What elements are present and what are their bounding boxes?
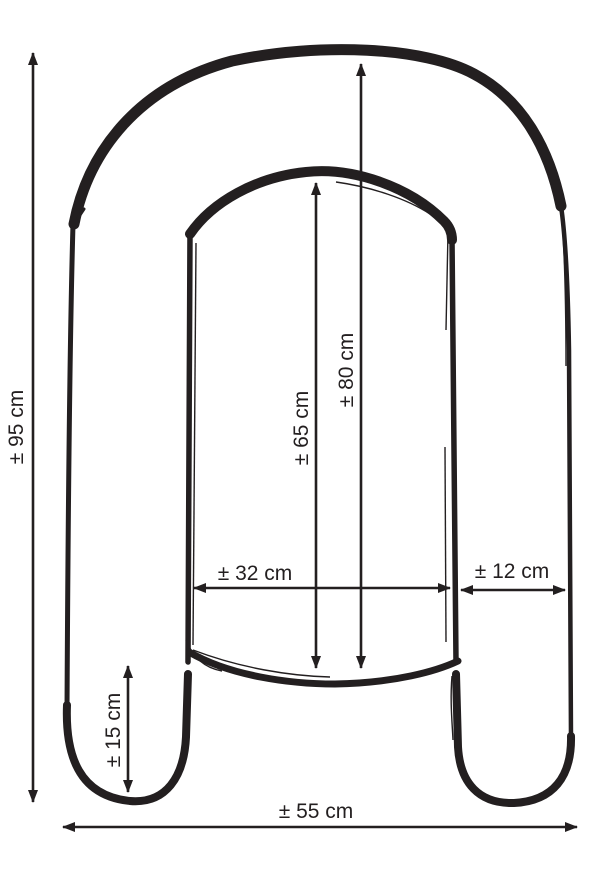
label-tube-width: ± 12 cm (475, 560, 550, 583)
pillow-outline (67, 50, 571, 803)
label-overall-width: ± 55 cm (279, 800, 354, 823)
outer-right-leg (456, 674, 571, 803)
sketch-line-inner-right-top (446, 232, 448, 330)
dimension-labels: ± 95 cm ± 80 cm ± 65 cm ± 32 cm ± 12 cm … (5, 333, 549, 823)
sketch-line-inner-left (193, 243, 196, 645)
label-overall-height: ± 95 cm (5, 390, 28, 465)
outer-top-band (74, 50, 561, 224)
inner-top-band (190, 171, 452, 240)
inner-right-edge (452, 238, 456, 662)
outer-right-edge (561, 206, 571, 740)
outer-left-edge (67, 224, 73, 710)
pillow-dimension-diagram: ± 95 cm ± 80 cm ± 65 cm ± 32 cm ± 12 cm … (0, 0, 600, 886)
label-inner-height: ± 65 cm (290, 391, 313, 466)
label-outer-top-to-opening: ± 80 cm (335, 333, 358, 408)
label-inner-width: ± 32 cm (218, 562, 293, 585)
opening-bottom-curve (189, 652, 458, 684)
diagram-canvas: ± 95 cm ± 80 cm ± 65 cm ± 32 cm ± 12 cm … (0, 0, 600, 886)
inner-left-edge (188, 232, 190, 662)
label-leg-tip-height: ± 15 cm (102, 693, 125, 768)
sketch-line-inner-right-low (445, 447, 446, 642)
